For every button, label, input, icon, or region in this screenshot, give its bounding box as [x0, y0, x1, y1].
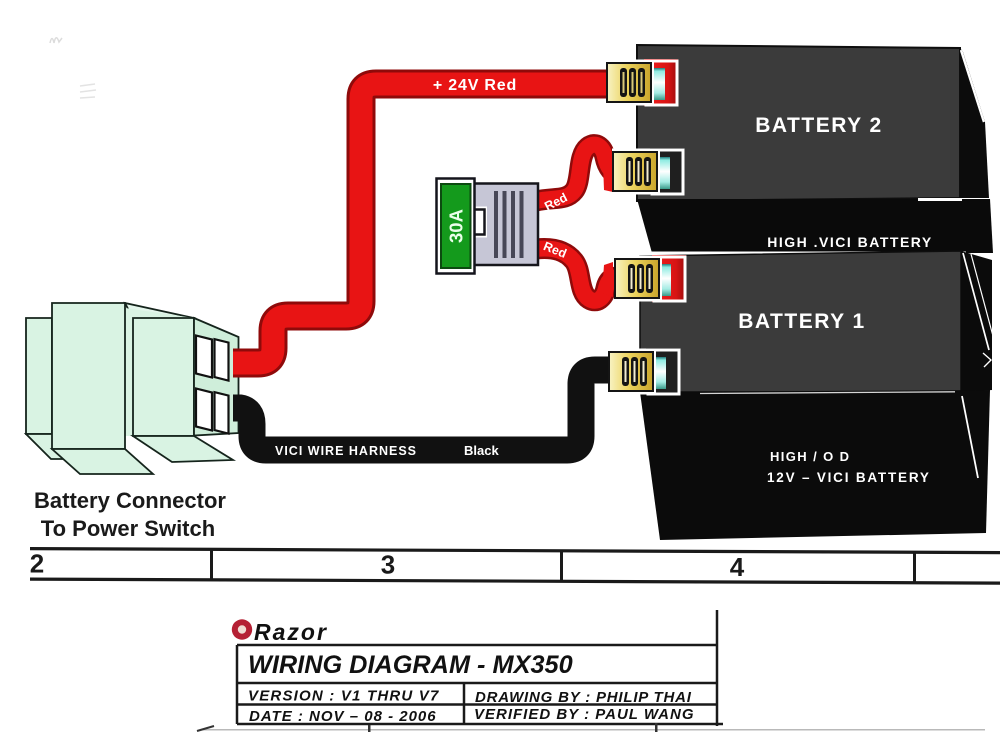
- svg-text:VERSION : V1 THRU V7: VERSION : V1 THRU V7: [248, 688, 440, 705]
- svg-text:2: 2: [30, 548, 44, 578]
- svg-text:4: 4: [730, 552, 745, 582]
- svg-text:Razor: Razor: [254, 619, 328, 645]
- svg-text:HIGH / O D: HIGH / O D: [770, 449, 850, 464]
- svg-text:+ 24V Red: + 24V Red: [433, 77, 517, 94]
- svg-text:VERIFIED BY : PAUL WANG: VERIFIED BY : PAUL WANG: [474, 706, 695, 723]
- svg-text:BATTERY 2: BATTERY 2: [755, 114, 882, 137]
- svg-text:30A: 30A: [446, 209, 467, 243]
- svg-text:Black: Black: [464, 443, 499, 458]
- svg-text:3: 3: [381, 550, 395, 580]
- svg-text:DATE : NOV – 08 - 2006: DATE : NOV – 08 - 2006: [249, 708, 437, 725]
- svg-text:12V – VICI BATTERY: 12V – VICI BATTERY: [767, 470, 931, 485]
- svg-text:Battery Connector: Battery Connector: [34, 488, 226, 513]
- svg-text:To Power Switch: To Power Switch: [41, 516, 215, 541]
- svg-text:BATTERY 1: BATTERY 1: [738, 310, 865, 333]
- svg-text:WIRING DIAGRAM - MX350: WIRING DIAGRAM - MX350: [248, 651, 573, 679]
- svg-text:HIGH .VICI BATTERY: HIGH .VICI BATTERY: [767, 234, 932, 250]
- svg-text:DRAWING BY : PHILIP THAI: DRAWING BY : PHILIP THAI: [475, 689, 692, 706]
- svg-text:VICI WIRE HARNESS: VICI WIRE HARNESS: [275, 444, 417, 458]
